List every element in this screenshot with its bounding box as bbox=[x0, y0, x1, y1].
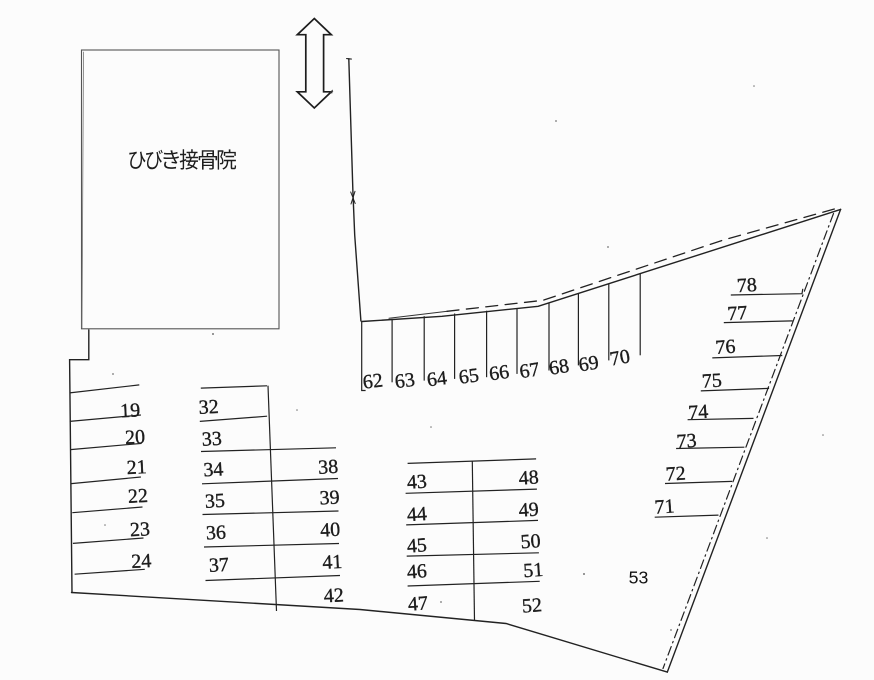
svg-text:32: 32 bbox=[198, 396, 219, 419]
svg-text:42: 42 bbox=[323, 584, 344, 607]
svg-text:77: 77 bbox=[727, 302, 748, 325]
svg-text:46: 46 bbox=[406, 560, 427, 583]
svg-text:62: 62 bbox=[362, 369, 385, 393]
svg-text:34: 34 bbox=[203, 458, 224, 481]
svg-text:53: 53 bbox=[629, 568, 649, 588]
svg-text:69: 69 bbox=[577, 352, 600, 377]
svg-text:21: 21 bbox=[126, 456, 147, 479]
svg-text:73: 73 bbox=[676, 430, 697, 453]
svg-text:67: 67 bbox=[518, 358, 541, 383]
svg-text:37: 37 bbox=[208, 554, 229, 577]
svg-text:49: 49 bbox=[518, 498, 539, 521]
svg-text:45: 45 bbox=[406, 534, 427, 557]
svg-text:74: 74 bbox=[688, 401, 709, 424]
svg-text:33: 33 bbox=[201, 428, 222, 451]
svg-text:48: 48 bbox=[518, 466, 539, 489]
svg-text:39: 39 bbox=[319, 486, 340, 509]
svg-text:41: 41 bbox=[322, 551, 343, 574]
svg-text:44: 44 bbox=[406, 503, 427, 526]
svg-text:63: 63 bbox=[394, 369, 417, 393]
svg-text:72: 72 bbox=[665, 462, 686, 485]
svg-text:66: 66 bbox=[488, 361, 511, 386]
svg-text:75: 75 bbox=[701, 369, 722, 392]
svg-text:70: 70 bbox=[608, 345, 632, 370]
svg-text:71: 71 bbox=[654, 495, 675, 518]
svg-text:22: 22 bbox=[127, 485, 148, 508]
svg-text:35: 35 bbox=[204, 490, 225, 513]
svg-text:47: 47 bbox=[407, 592, 428, 615]
svg-text:64: 64 bbox=[426, 367, 449, 391]
svg-text:52: 52 bbox=[521, 594, 542, 617]
svg-text:51: 51 bbox=[523, 559, 544, 582]
svg-text:24: 24 bbox=[131, 550, 152, 573]
svg-text:38: 38 bbox=[318, 456, 339, 479]
svg-text:23: 23 bbox=[129, 518, 150, 541]
svg-text:50: 50 bbox=[520, 530, 541, 553]
svg-text:76: 76 bbox=[715, 336, 736, 359]
svg-text:40: 40 bbox=[320, 519, 341, 542]
svg-text:19: 19 bbox=[120, 399, 141, 422]
svg-text:68: 68 bbox=[547, 355, 570, 380]
svg-text:65: 65 bbox=[457, 364, 480, 389]
svg-text:78: 78 bbox=[736, 274, 757, 297]
svg-text:36: 36 bbox=[205, 521, 226, 544]
svg-text:43: 43 bbox=[406, 471, 427, 494]
svg-text:20: 20 bbox=[125, 426, 146, 449]
